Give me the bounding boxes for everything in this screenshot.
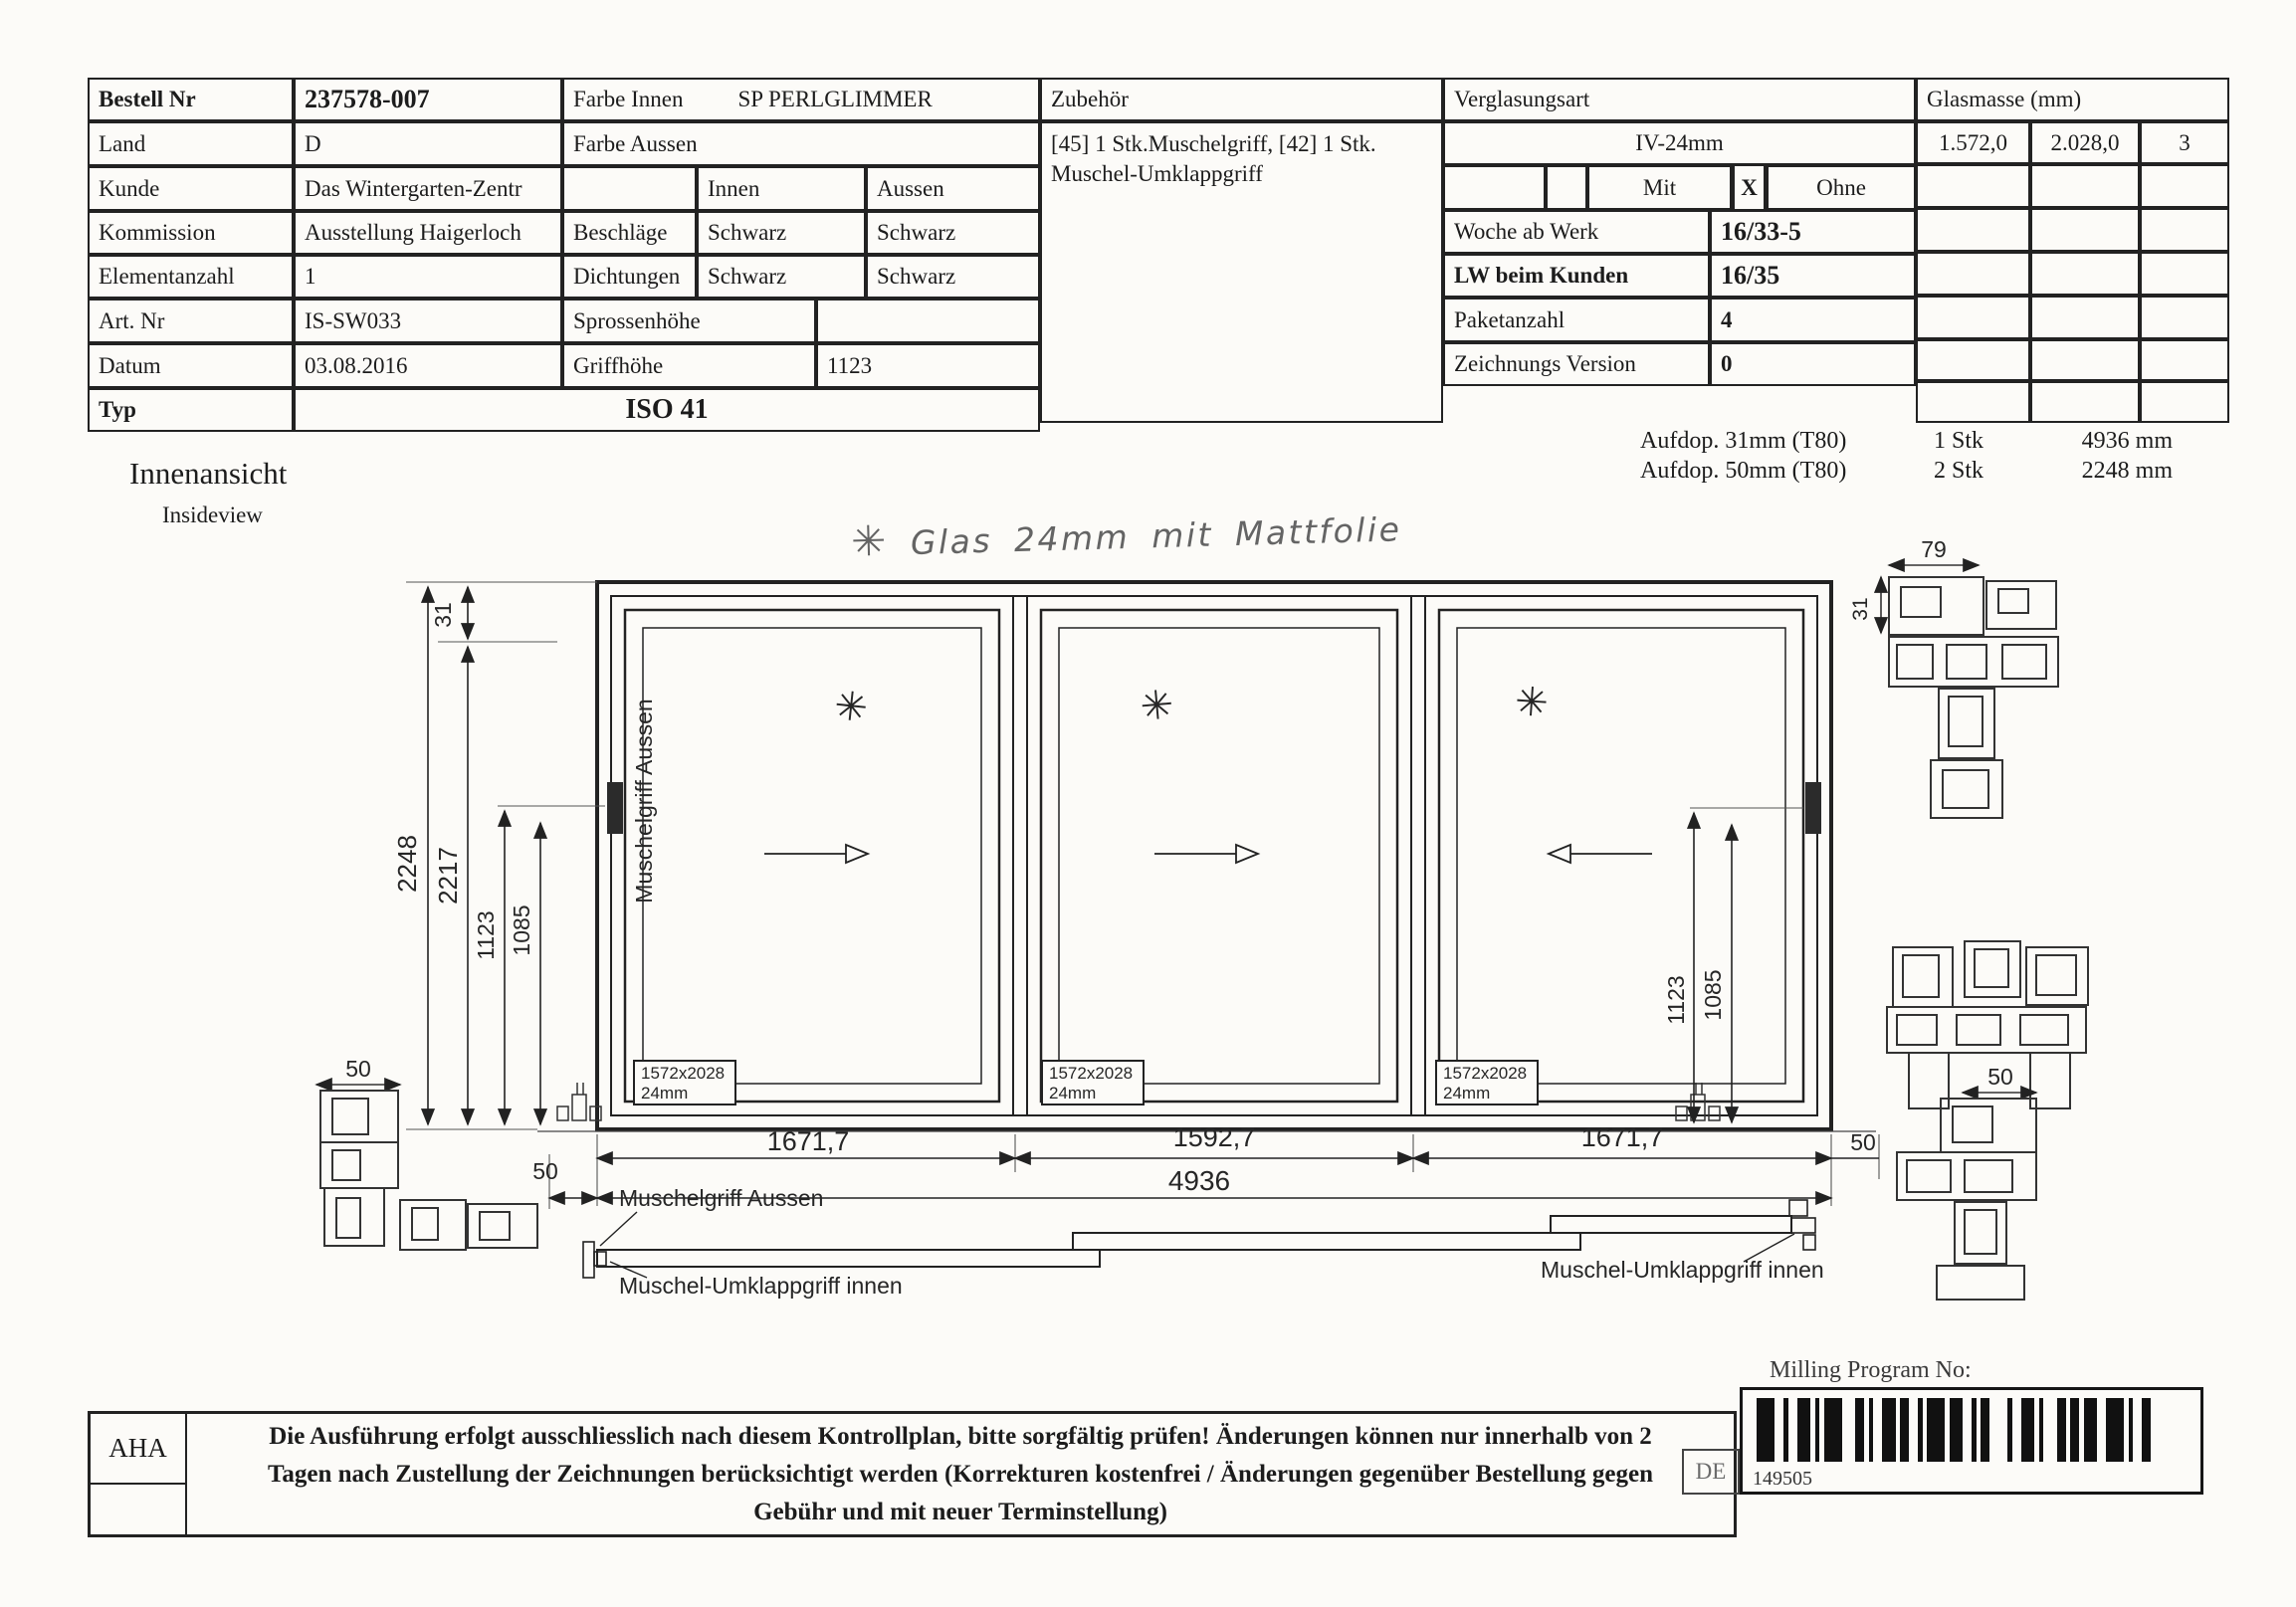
- svg-text:24mm: 24mm: [1049, 1084, 1096, 1103]
- svg-text:2248: 2248: [392, 835, 422, 893]
- notice-line-1: Die Ausführung erfolgt ausschliesslich n…: [190, 1418, 1731, 1456]
- elevation-frame: [597, 582, 1831, 1129]
- right-profile-top-dim-31: 31: [1849, 597, 1872, 620]
- svg-text:4936: 4936: [1168, 1165, 1230, 1196]
- footer-notice: AHA Die Ausführung erfolgt ausschliessli…: [88, 1411, 1737, 1537]
- svg-text:✳: ✳: [1514, 680, 1551, 725]
- right-dimensions: 1123 1085: [1663, 808, 1803, 1122]
- svg-text:1123: 1123: [473, 910, 499, 959]
- aha-box: AHA: [91, 1414, 187, 1534]
- handle-vertical-label: Muschelgriff Aussen: [631, 699, 657, 903]
- barcode-box: 149505: [1740, 1387, 2203, 1495]
- kontrollplan-sheet: Bestell Nr Land Kunde Kommission Element…: [0, 0, 2296, 1607]
- notice-line-2: Tagen nach Zustellung der Zeichnungen be…: [190, 1456, 1731, 1494]
- left-profile-dim: 50: [345, 1056, 371, 1082]
- svg-text:1592,7: 1592,7: [1173, 1122, 1256, 1152]
- barcode: [1757, 1398, 2165, 1462]
- slide-arrows: [764, 845, 1652, 863]
- handle-left: [607, 782, 623, 834]
- svg-text:1085: 1085: [509, 904, 534, 955]
- right-profile-top-dim-79: 79: [1921, 536, 1947, 562]
- svg-text:1572x2028: 1572x2028: [1049, 1064, 1133, 1083]
- svg-text:24mm: 24mm: [641, 1084, 688, 1103]
- svg-text:1572x2028: 1572x2028: [1443, 1064, 1527, 1083]
- svg-text:✳: ✳: [1139, 683, 1175, 729]
- milling-label: Milling Program No:: [1770, 1357, 1972, 1384]
- svg-text:2217: 2217: [433, 847, 463, 904]
- svg-text:50: 50: [1850, 1129, 1876, 1155]
- notice-text: Die Ausführung erfolgt ausschliesslich n…: [190, 1418, 1731, 1532]
- svg-text:24mm: 24mm: [1443, 1084, 1490, 1103]
- svg-text:1671,7: 1671,7: [1581, 1122, 1664, 1152]
- svg-text:1085: 1085: [1700, 969, 1726, 1020]
- svg-text:1572x2028: 1572x2028: [641, 1064, 725, 1083]
- svg-text:✳: ✳: [832, 684, 870, 730]
- label-flip-inside-left: Muschel-Umklappgriff innen: [619, 1273, 903, 1299]
- label-shell-outside: Muschelgriff Aussen: [619, 1185, 823, 1211]
- label-flip-inside-right: Muschel-Umklappgriff innen: [1541, 1257, 1824, 1283]
- svg-text:31: 31: [430, 602, 456, 628]
- barcode-number: 149505: [1753, 1468, 1812, 1491]
- right-profile-top: [1881, 565, 2058, 818]
- handle-right: [1805, 782, 1821, 834]
- svg-text:50: 50: [532, 1158, 558, 1184]
- glass-size-boxes: 1572x2028 24mm 1572x2028 24mm 1572x2028 …: [634, 1061, 1538, 1105]
- left-dimensions: 2248 2217 31 1123 1085: [392, 582, 605, 1129]
- svg-text:1123: 1123: [1663, 975, 1689, 1024]
- svg-text:1671,7: 1671,7: [767, 1126, 850, 1156]
- right-profile-bottom: [1897, 1093, 2036, 1300]
- glass-asterisks: ✳ ✳ ✳: [832, 680, 1550, 730]
- aha-label: AHA: [91, 1414, 185, 1485]
- right-profile-bottom-dim: 50: [1987, 1064, 2013, 1090]
- notice-line-3: Gebühr und mit neuer Terminstellung): [190, 1494, 1731, 1531]
- country-box: DE: [1682, 1449, 1740, 1495]
